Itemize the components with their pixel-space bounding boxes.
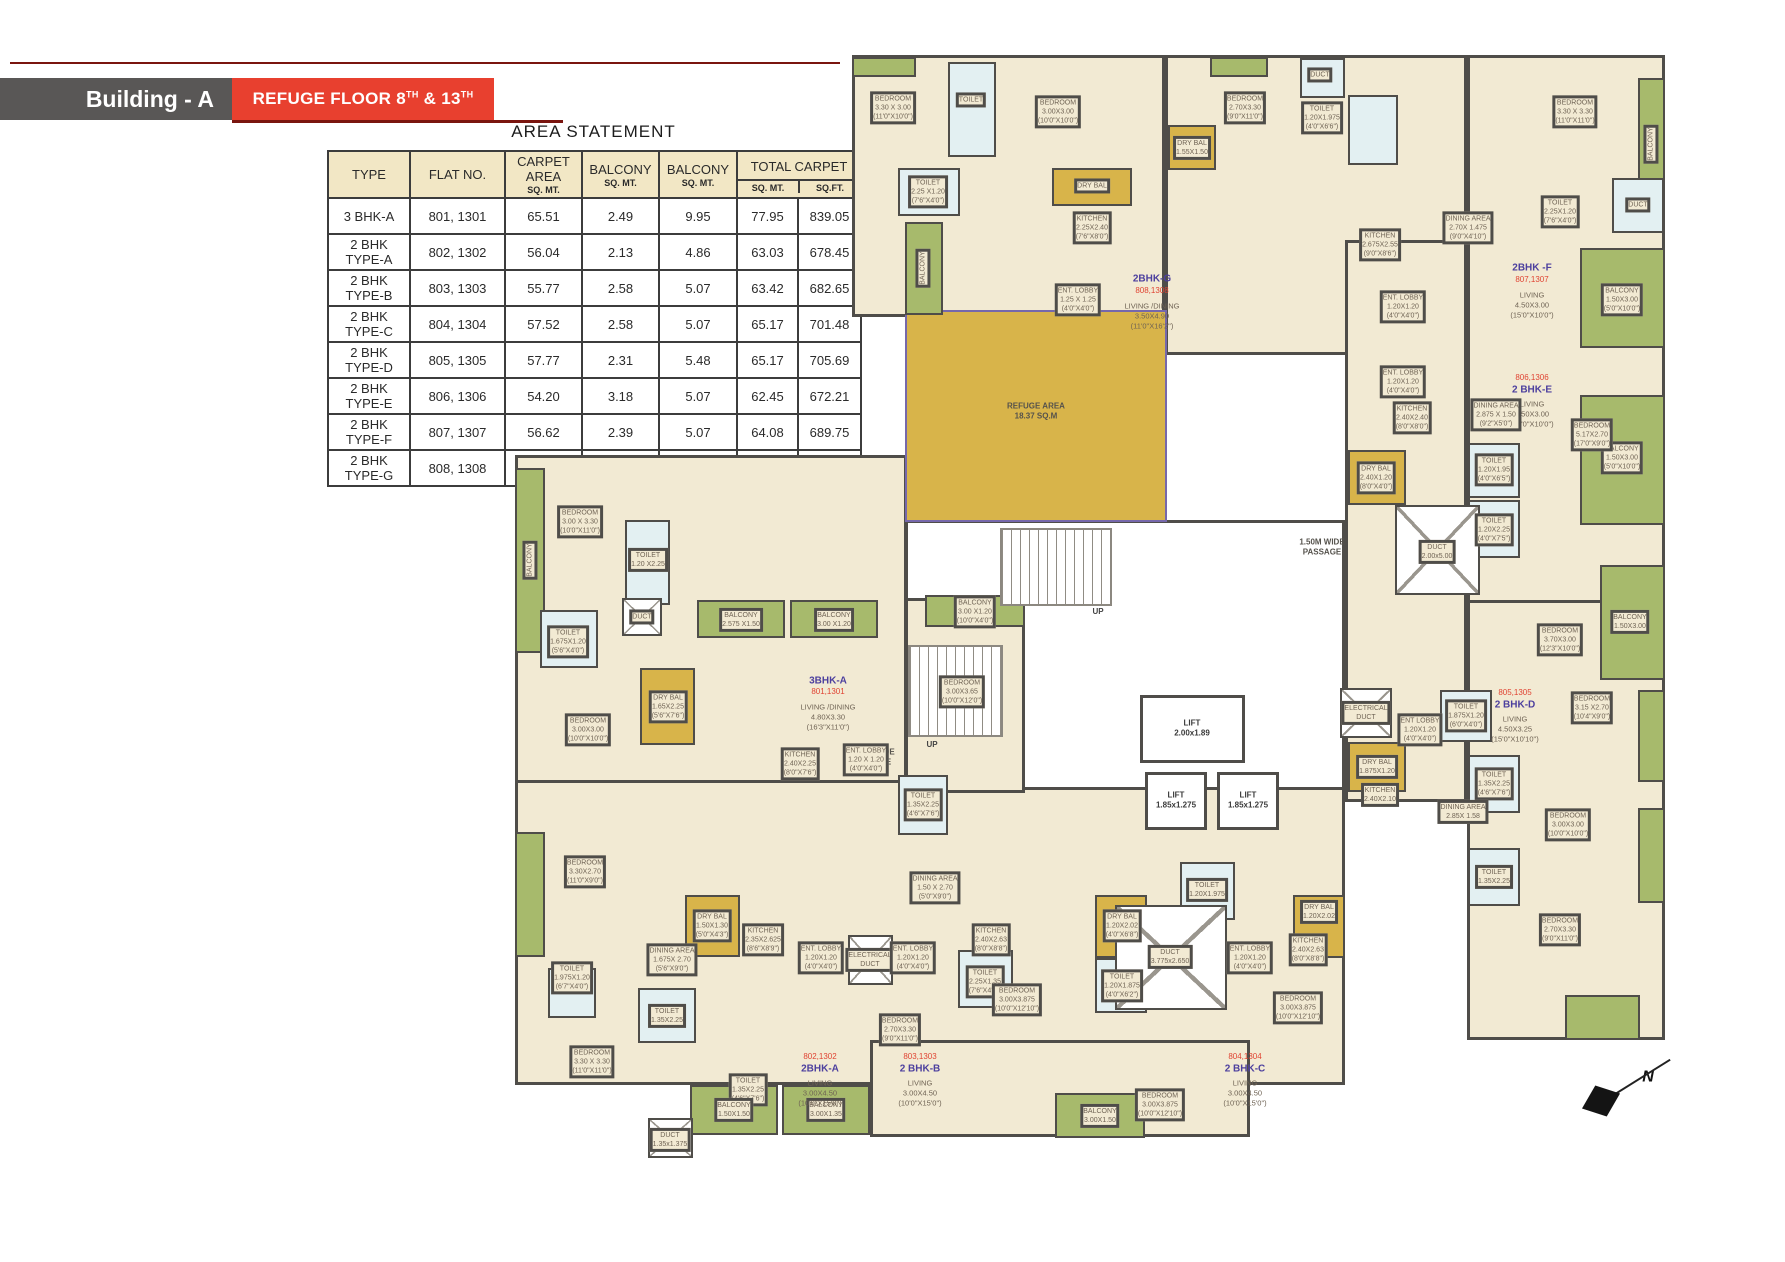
unit-type-label: 3BHK-A (809, 675, 847, 688)
unit-type-label: 2 BHK-D (1495, 699, 1536, 712)
room-label: DRY BAL 1.65X2.25 (5'6"X7'6") (649, 690, 688, 723)
lift-label: LIFT 2.00x1.89 (1174, 719, 1210, 740)
room-label: DRY BAL 1.50X1.30 (5'0"X4'3") (693, 909, 732, 942)
room-label: TOILET 1.20X2.25 (4'0"X7'5") (1475, 513, 1514, 546)
room-label: TOILET 1.875X1.20 (6'0"X4'0") (1445, 699, 1487, 732)
room-label: TOILET 2.25 X1.20 (7'6"X4'0") (908, 175, 948, 208)
balcony-block (1638, 808, 1665, 903)
unit-flat-label: 802,1302 (803, 1052, 836, 1062)
room-label: BEDROOM 3.15 X2.70 (10'4"X9'0") (1571, 691, 1613, 724)
room-label: LIVING 4.50X3.00 (15'0"X10'0") (1510, 290, 1553, 319)
room-label: BEDROOM 3.00X3.00 (10'0"X10'0") (565, 713, 611, 746)
room-label: BALCONY 3.00 X1.20 (814, 608, 854, 632)
room-label: DRY BAL 1.55X1.50 (1173, 136, 1211, 160)
floorplan-page: Building - A REFUGE FLOOR 8TH & 13TH ARE… (0, 0, 1785, 1262)
room-label: TOILET 1.675X1.20 (5'6"X4'0") (547, 625, 589, 658)
room-label: DRY BAL 1.20X2.02 (4'0"X6'8") (1103, 909, 1142, 942)
room-label: ENT. LOBBY 1.20X1.20 (4'0"X4'0") (1227, 941, 1273, 974)
room-label: DRY BAL (1074, 178, 1110, 193)
room-label: TOILET 1.975X1.20 (6'7"X4'0") (551, 961, 593, 994)
room-label: TOILET 1.20X1.875 (4'0"X6'2") (1101, 969, 1143, 1002)
room-label: BALCONY 3.00X1.50 (1080, 1104, 1119, 1128)
room-label: DRY BAL 1.20X2.02 (1300, 900, 1338, 924)
room-label: LIVING 4.50X3.25 (15'0"X10'10") (1491, 714, 1538, 743)
room-label: BEDROOM 3.30X2.70 (11'0"X9'0") (564, 855, 606, 888)
room-label: KITCHEN 2.675X2.55 (9'0"X8'6") (1359, 228, 1401, 261)
lift-label: LIFT 1.85x1.275 (1228, 791, 1268, 812)
room-label: BEDROOM 3.30 X 3.00 (11'0"X10'0") (870, 91, 916, 124)
room-label: DUCT (629, 609, 654, 624)
room-label: TOILET 1.35X2.25 (648, 1004, 686, 1028)
unit-type-label: 2 BHK-E (1512, 384, 1552, 397)
room-label: TOILET 1.35X2.25 (4'6"X7'6") (1475, 767, 1514, 800)
room-label: DUCT (1307, 67, 1332, 82)
room-label: BEDROOM 3.00 X 3.30 (10'0"X11'0") (557, 505, 603, 538)
room-label: BEDROOM 3.00X3.65 (10'0"X12'0") (939, 675, 985, 708)
room-label: DINING AREA 2.85X 1.58 (1437, 800, 1488, 824)
room-label: TOILET (956, 92, 986, 107)
room-label: BALCONY 1.50X1.50 (714, 1098, 753, 1122)
room-label: ENT. LOBBY 1.20X1.20 (4'0"X4'0") (1380, 290, 1426, 323)
room-label: KITCHEN 2.25X2.40 (7'6"X8'0") (1073, 211, 1112, 244)
room-label: BALCONY 1.50X3.00 (1610, 610, 1649, 634)
unit-flat-label: 808,1308 (1135, 286, 1168, 296)
unit-flat-label: 805,1305 (1498, 688, 1531, 698)
room-label: KITCHEN 2.40X2.40 (8'0"X8'0") (1393, 401, 1432, 434)
balcony-block (1638, 690, 1665, 782)
room-label: BALCONY (522, 540, 537, 579)
room-label: ENT. LOBBY 1.20 X 1.20 (4'0"X4'0") (843, 743, 889, 776)
room-label: BEDROOM 3.70X3.00 (12'3"X10'0") (1537, 623, 1583, 656)
room-label: UP (1092, 607, 1103, 617)
room-label: DUCT (1625, 197, 1650, 212)
room-label: DRY BAL 1.875X1.20 (1356, 755, 1398, 779)
room-label: BEDROOM 3.30 X 3.30 (11'0"X11'0") (569, 1045, 614, 1078)
refuge-area-label: REFUGE AREA 18.37 SQ.M (1007, 402, 1065, 423)
room-label: ENT. LOBBY 1.20X1.20 (4'0"X4'0") (798, 941, 844, 974)
unit-type-label: 2 BHK-B (900, 1063, 941, 1076)
room-label: ELECTRICAL DUCT (1341, 701, 1390, 725)
unit-type-label: 2BHK -F (1512, 262, 1551, 275)
room-label: BEDROOM 3.00X3.00 (10'0"X10'0") (1545, 808, 1591, 841)
room-label: BEDROOM 5.17X2.70 (17'0"X9'0") (1571, 418, 1613, 451)
lift-label: LIFT 1.85x1.275 (1156, 791, 1196, 812)
room-label: LIVING 3.00X4.50 (10'0"X15'0") (1223, 1078, 1266, 1107)
room-label: DINING AREA 1.675X 2.70 (5'6"X9'0") (646, 943, 697, 976)
room-label: KITCHEN 2.35X2.625 (8'6"X8'9") (742, 923, 784, 956)
room-label: TOILET 1.35X2.25 (4'6"X7'6") (904, 788, 943, 821)
room-label: LIVING /DINING 4.80X3.30 (16'3"X11'0") (800, 702, 855, 731)
room-label: TOILET 1.20X1.975 (1186, 878, 1228, 902)
room-label: LIVING /DINING 3.50X4.90 (11'0"X16'2") (1124, 301, 1179, 330)
balcony-block (515, 832, 545, 957)
room-label: BEDROOM 3.00X3.875 (10'0"X12'10") (1273, 991, 1323, 1024)
room-label: KITCHEN 2.40X2.63 (8'0"X8'8") (972, 923, 1011, 956)
room-label: 1.50M WIDE PASSAGE (1299, 538, 1344, 559)
room-label: DRY BAL 2.40X1.20 (8'0"X4'0") (1357, 461, 1396, 494)
unit-type-label: 2BHK-A (801, 1063, 839, 1076)
room-label: ENT. LOBBY 1.20X1.20 (4'0"X4'0") (1380, 365, 1426, 398)
room-label: ENT. LOBBY 1.25 X 1.25 (4'0"X4'0") (1055, 283, 1101, 316)
room-label: ENT LOBBY 1.20X1.20 (4'0"X4'0") (1397, 713, 1442, 746)
balcony-block (1210, 57, 1268, 77)
room-label: TOILET 1.20 X2.25 (628, 548, 668, 572)
unit-flat-label: 807,1307 (1515, 275, 1548, 285)
room-label: BALCONY (1643, 124, 1658, 163)
room-label: DUCT 1.35x1.375 (650, 1128, 691, 1152)
room-label: DUCT 3.775x2.650 (1148, 945, 1193, 969)
room-label: BEDROOM 3.30 X 3.30 (11'0"X11'0") (1552, 95, 1597, 128)
toilet-block (948, 62, 996, 157)
room-label: BEDROOM 2.70X3.30 (9'0"X11'0") (1539, 913, 1581, 946)
unit-type-label: 2BHK-G (1133, 273, 1171, 286)
room-label: KITCHEN 2.40X2.10 (1361, 783, 1399, 807)
balcony-block (1565, 995, 1640, 1040)
room-label: DINING AREA 2.875 X 1.50 (9'2"X5'0") (1470, 398, 1521, 431)
room-label: KITCHEN 2.40X2.25 (8'0"X7'6") (781, 747, 820, 780)
room-label: LIVING 3.00X4.50 (10'0"X15'0") (898, 1078, 941, 1107)
room-label: BALCONY 2.575 X1.50 (719, 608, 763, 632)
room-label: BEDROOM 2.70X3.30 (9'0"X11'0") (1224, 91, 1266, 124)
room-label: BEDROOM 3.00X3.00 (10'0"X10'0") (1035, 95, 1081, 128)
room-label: LIVING 3.00X4.50 (10'0"X15'0") (798, 1078, 841, 1107)
room-label: KITCHEN 2.40X2.63 (8'0"X8'8") (1289, 933, 1328, 966)
room-label: BEDROOM 3.00X3.875 (10'0"X12'10") (992, 983, 1042, 1016)
room-label: BEDROOM 2.70X3.30 (9'0"X11'0") (879, 1013, 921, 1046)
room-label: TOILET 1.20X1.975 (4'0"X6'6") (1301, 101, 1343, 134)
unit-flat-label: 801,1301 (811, 687, 844, 697)
room-label: BALCONY 3.00 X1.20 (10'0"X4'0") (954, 595, 996, 628)
stairs-block (1000, 528, 1112, 606)
unit-flat-label: 803,1303 (903, 1052, 936, 1062)
room-label: TOILET 1.20X1.95 (4'0"X6'5") (1475, 453, 1514, 486)
room-label: DINING AREA 2.70X 1.475 (9'0"X4'10") (1442, 211, 1493, 244)
room-label: BALCONY (915, 248, 930, 287)
room-label: ENT. LOBBY 1.20X1.20 (4'0"X4'0") (890, 941, 936, 974)
balcony-block (852, 57, 916, 77)
unit-type-label: 2 BHK-C (1225, 1063, 1266, 1076)
room-label: ELECTRICAL DUCT (845, 948, 894, 972)
room-label: TOILET 2.25X1.20 (7'6"X4'0") (1541, 195, 1580, 228)
room-label: BEDROOM 3.00X3.875 (10'0"X12'10") (1135, 1088, 1185, 1121)
unit-flat-label: 804,1304 (1228, 1052, 1261, 1062)
room-label: DUCT 2.00x5.00 (1419, 540, 1456, 564)
floorplan: BEDROOM 3.30 X 3.00 (11'0"X10'0")TOILETB… (0, 0, 1785, 1262)
room-label: TOILET 1.35X2.25 (1475, 865, 1513, 889)
unit-flat-label: 806,1306 (1515, 373, 1548, 383)
toilet-block (1348, 95, 1398, 165)
room-label: BALCONY 1.50X3.00 (5'0"X10'0") (1601, 283, 1643, 316)
room-label: DINING AREA 1.50 X 2.70 (5'0"X9'0") (909, 871, 960, 904)
room-label: UP (926, 740, 937, 750)
